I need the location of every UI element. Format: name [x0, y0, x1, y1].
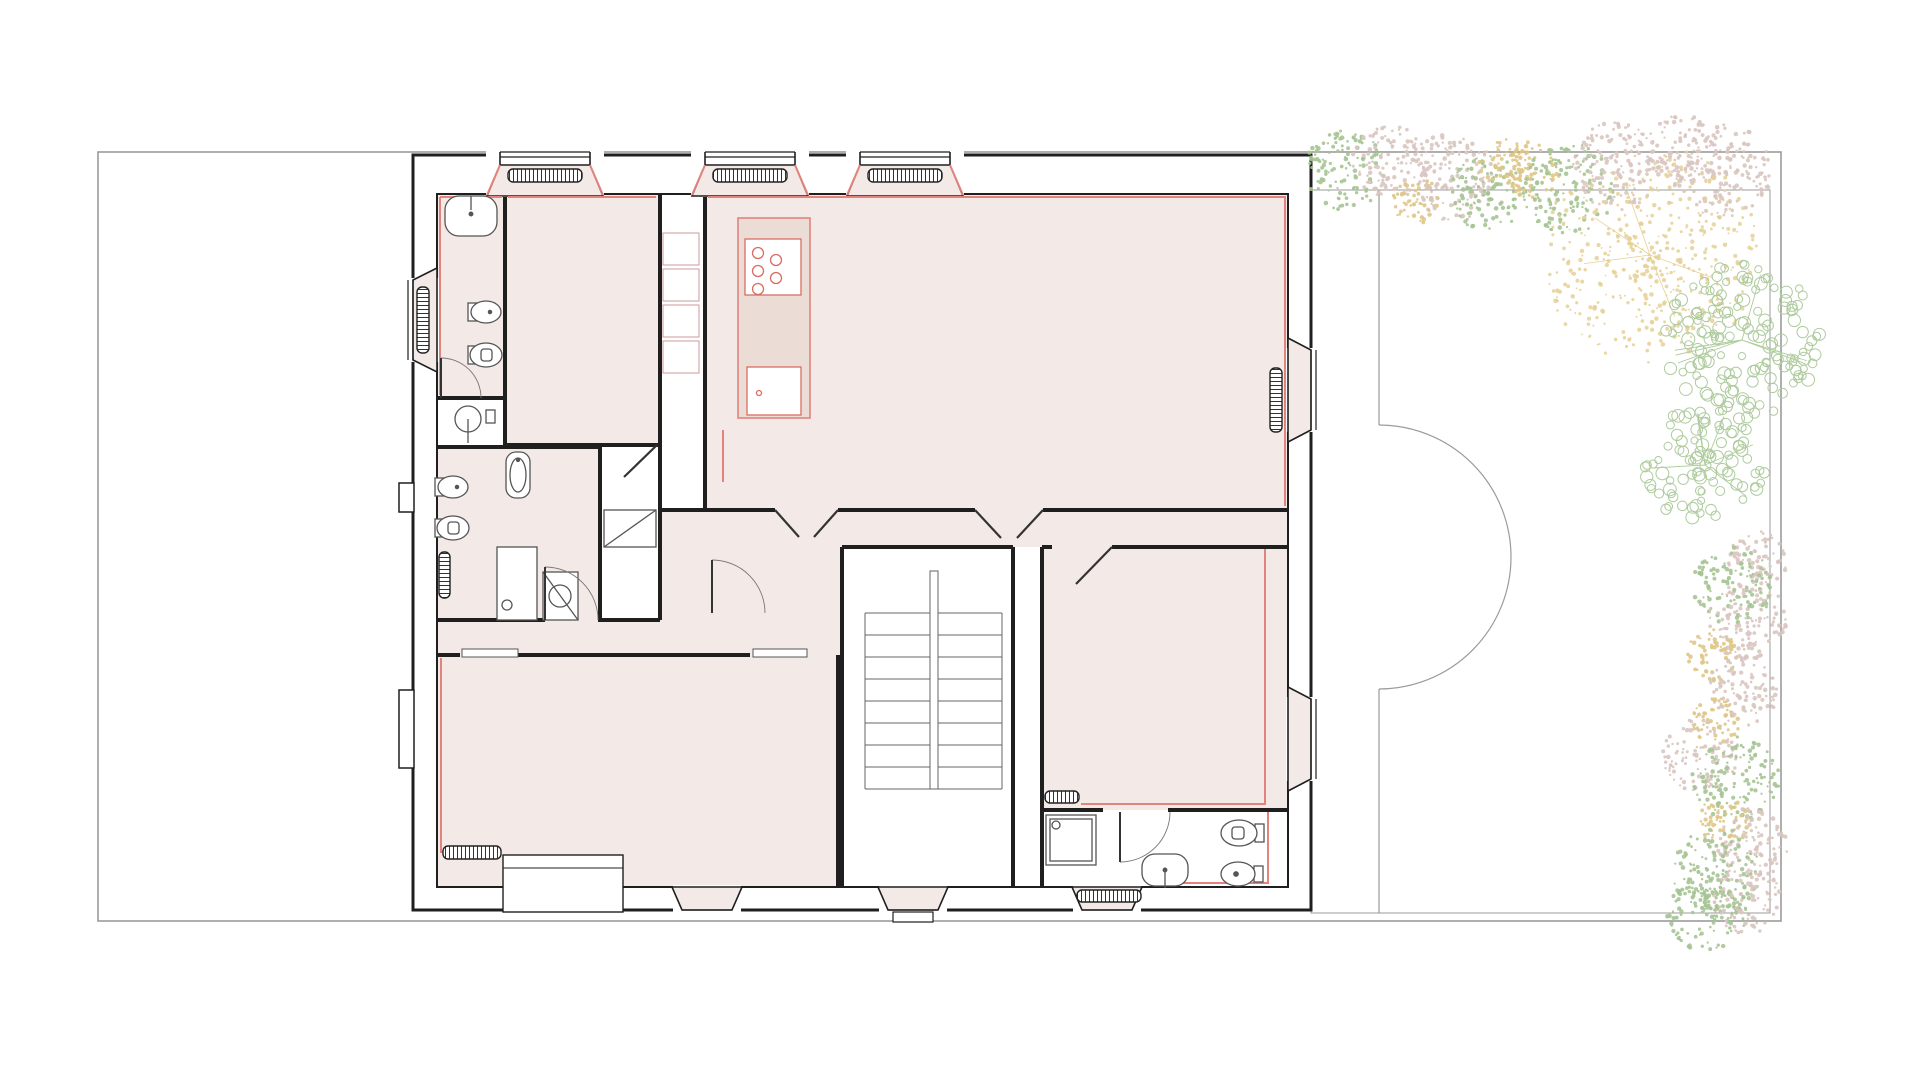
tree-dots [1675, 123, 1771, 219]
bay-window-east [1288, 338, 1311, 442]
sliding-door [462, 649, 518, 657]
bidet [468, 301, 501, 323]
radiator [1045, 791, 1079, 803]
garden-terrace-edge [1379, 190, 1511, 913]
room-hall [842, 510, 1288, 547]
closet [497, 547, 537, 620]
tree-rings [1661, 260, 1826, 423]
bidet [435, 476, 468, 498]
sink [1142, 854, 1188, 888]
toilet [435, 516, 469, 540]
radiator [439, 552, 450, 598]
window-seat-bay [503, 855, 623, 912]
pedestal-sink [455, 406, 495, 443]
island-sink [747, 367, 801, 415]
radiator [1270, 368, 1282, 432]
tree-dots [1411, 133, 1494, 221]
kitchen-shelf [663, 269, 699, 301]
radiator [417, 287, 429, 353]
small-tub [506, 452, 530, 498]
sliding-door [753, 649, 807, 657]
door-leaf [624, 445, 657, 477]
tree-rings [1640, 406, 1769, 524]
tree-dots [1712, 870, 1782, 935]
toilet [468, 343, 502, 367]
garden-trees [1307, 115, 1825, 951]
bidet [1221, 862, 1263, 886]
radiator [713, 169, 787, 182]
sink [445, 196, 497, 236]
tree-dots [1700, 800, 1749, 845]
room-bedroom-1 [505, 194, 660, 445]
entry-step [893, 912, 933, 922]
rooms [437, 194, 1288, 887]
toilet [1221, 820, 1264, 846]
radiator [868, 169, 942, 182]
radiator [508, 169, 582, 182]
kitchen-shelf [663, 305, 699, 337]
kitchen-shelf [663, 341, 699, 373]
wardrobe [604, 510, 656, 547]
garden-inner-border [1311, 190, 1770, 913]
tree-dots [1709, 654, 1778, 727]
chimney-notch [399, 483, 414, 512]
stove [745, 239, 801, 295]
bay-window-south [672, 887, 742, 910]
radiator [443, 846, 501, 859]
bay-window-east [1288, 687, 1311, 791]
terrace-semicircle [1379, 425, 1511, 689]
kitchen-shelf [663, 233, 699, 265]
shower-tray [1046, 815, 1096, 865]
room-vestibule [660, 510, 842, 620]
staircase [865, 571, 1002, 789]
tree-dots [1307, 129, 1385, 211]
tree-dots [1692, 697, 1740, 743]
room-bedroom-2 [1042, 547, 1288, 810]
floor-plan-canvas [0, 0, 1920, 1086]
tree-dots [1716, 807, 1788, 879]
stair-divider [930, 571, 938, 789]
floor-plan-drawing [0, 0, 1920, 1086]
tree-dots [1665, 873, 1747, 951]
radiator [1077, 890, 1141, 902]
chimney-notch [399, 690, 414, 768]
bay-window-south [878, 887, 948, 910]
shower-tray [543, 572, 578, 620]
